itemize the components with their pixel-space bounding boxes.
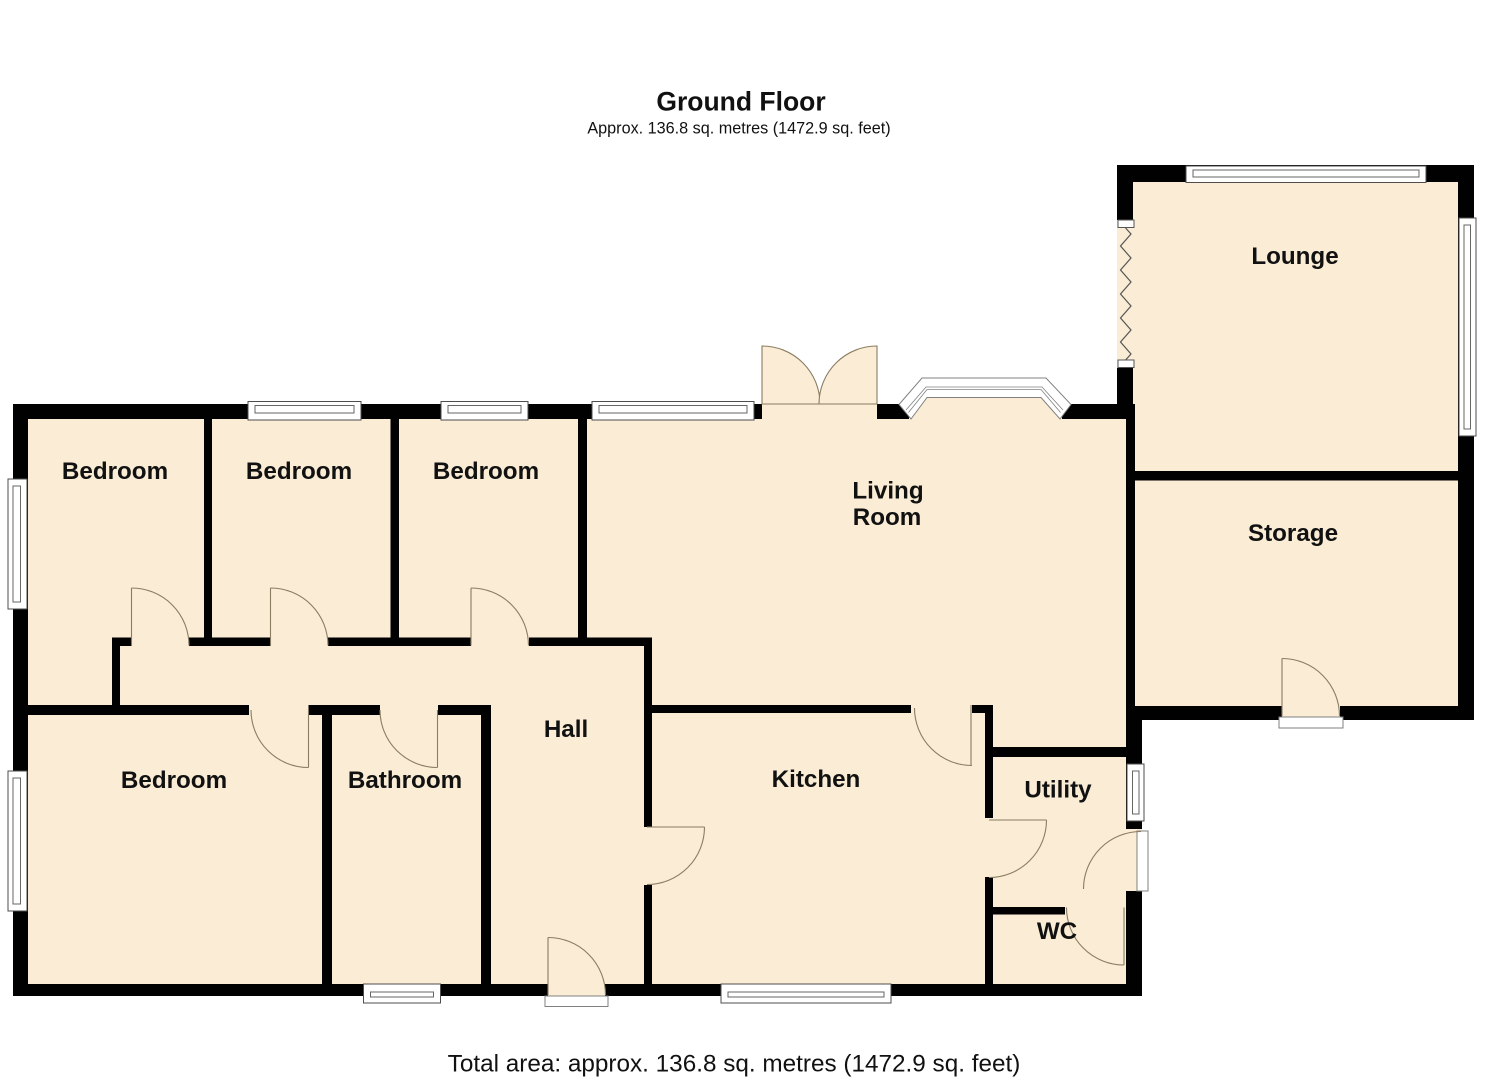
svg-text:Ground Floor: Ground Floor [656, 87, 825, 117]
svg-text:Bathroom: Bathroom [348, 767, 462, 794]
svg-text:Bedroom: Bedroom [433, 458, 539, 485]
svg-text:Room: Room [853, 504, 922, 531]
svg-text:Bedroom: Bedroom [121, 767, 227, 794]
svg-text:Storage: Storage [1248, 520, 1338, 547]
svg-text:Bedroom: Bedroom [62, 458, 168, 485]
svg-text:Hall: Hall [544, 716, 588, 743]
svg-text:Approx. 136.8 sq. metres (1472: Approx. 136.8 sq. metres (1472.9 sq. fee… [587, 120, 890, 138]
svg-text:Bedroom: Bedroom [246, 458, 352, 485]
svg-text:Kitchen: Kitchen [772, 766, 861, 793]
svg-text:Lounge: Lounge [1251, 243, 1338, 270]
svg-text:Living: Living [852, 478, 923, 505]
svg-text:WC: WC [1037, 918, 1077, 945]
svg-text:Utility: Utility [1024, 777, 1092, 804]
svg-text:Total area: approx. 136.8 sq.: Total area: approx. 136.8 sq. metres (14… [448, 1051, 1021, 1078]
